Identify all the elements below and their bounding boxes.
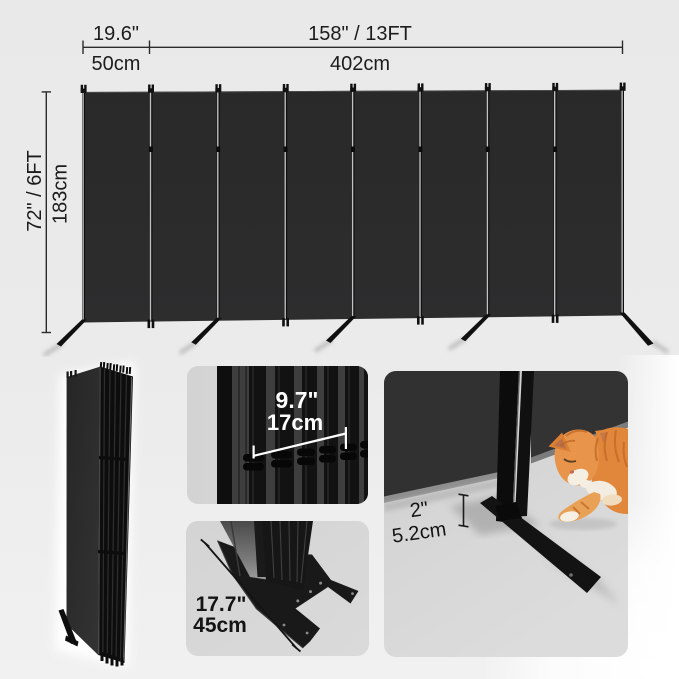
svg-text:72" / 6FT: 72" / 6FT <box>24 150 46 232</box>
svg-text:19.6": 19.6" <box>93 23 139 45</box>
svg-text:158" / 13FT: 158" / 13FT <box>308 23 412 45</box>
svg-text:17.7": 17.7" <box>196 593 247 616</box>
svg-text:50cm: 50cm <box>92 53 141 75</box>
svg-text:45cm: 45cm <box>193 614 247 637</box>
svg-text:17cm: 17cm <box>267 410 323 435</box>
svg-text:183cm: 183cm <box>50 164 72 224</box>
svg-text:2": 2" <box>409 498 430 522</box>
svg-text:402cm: 402cm <box>330 53 390 75</box>
